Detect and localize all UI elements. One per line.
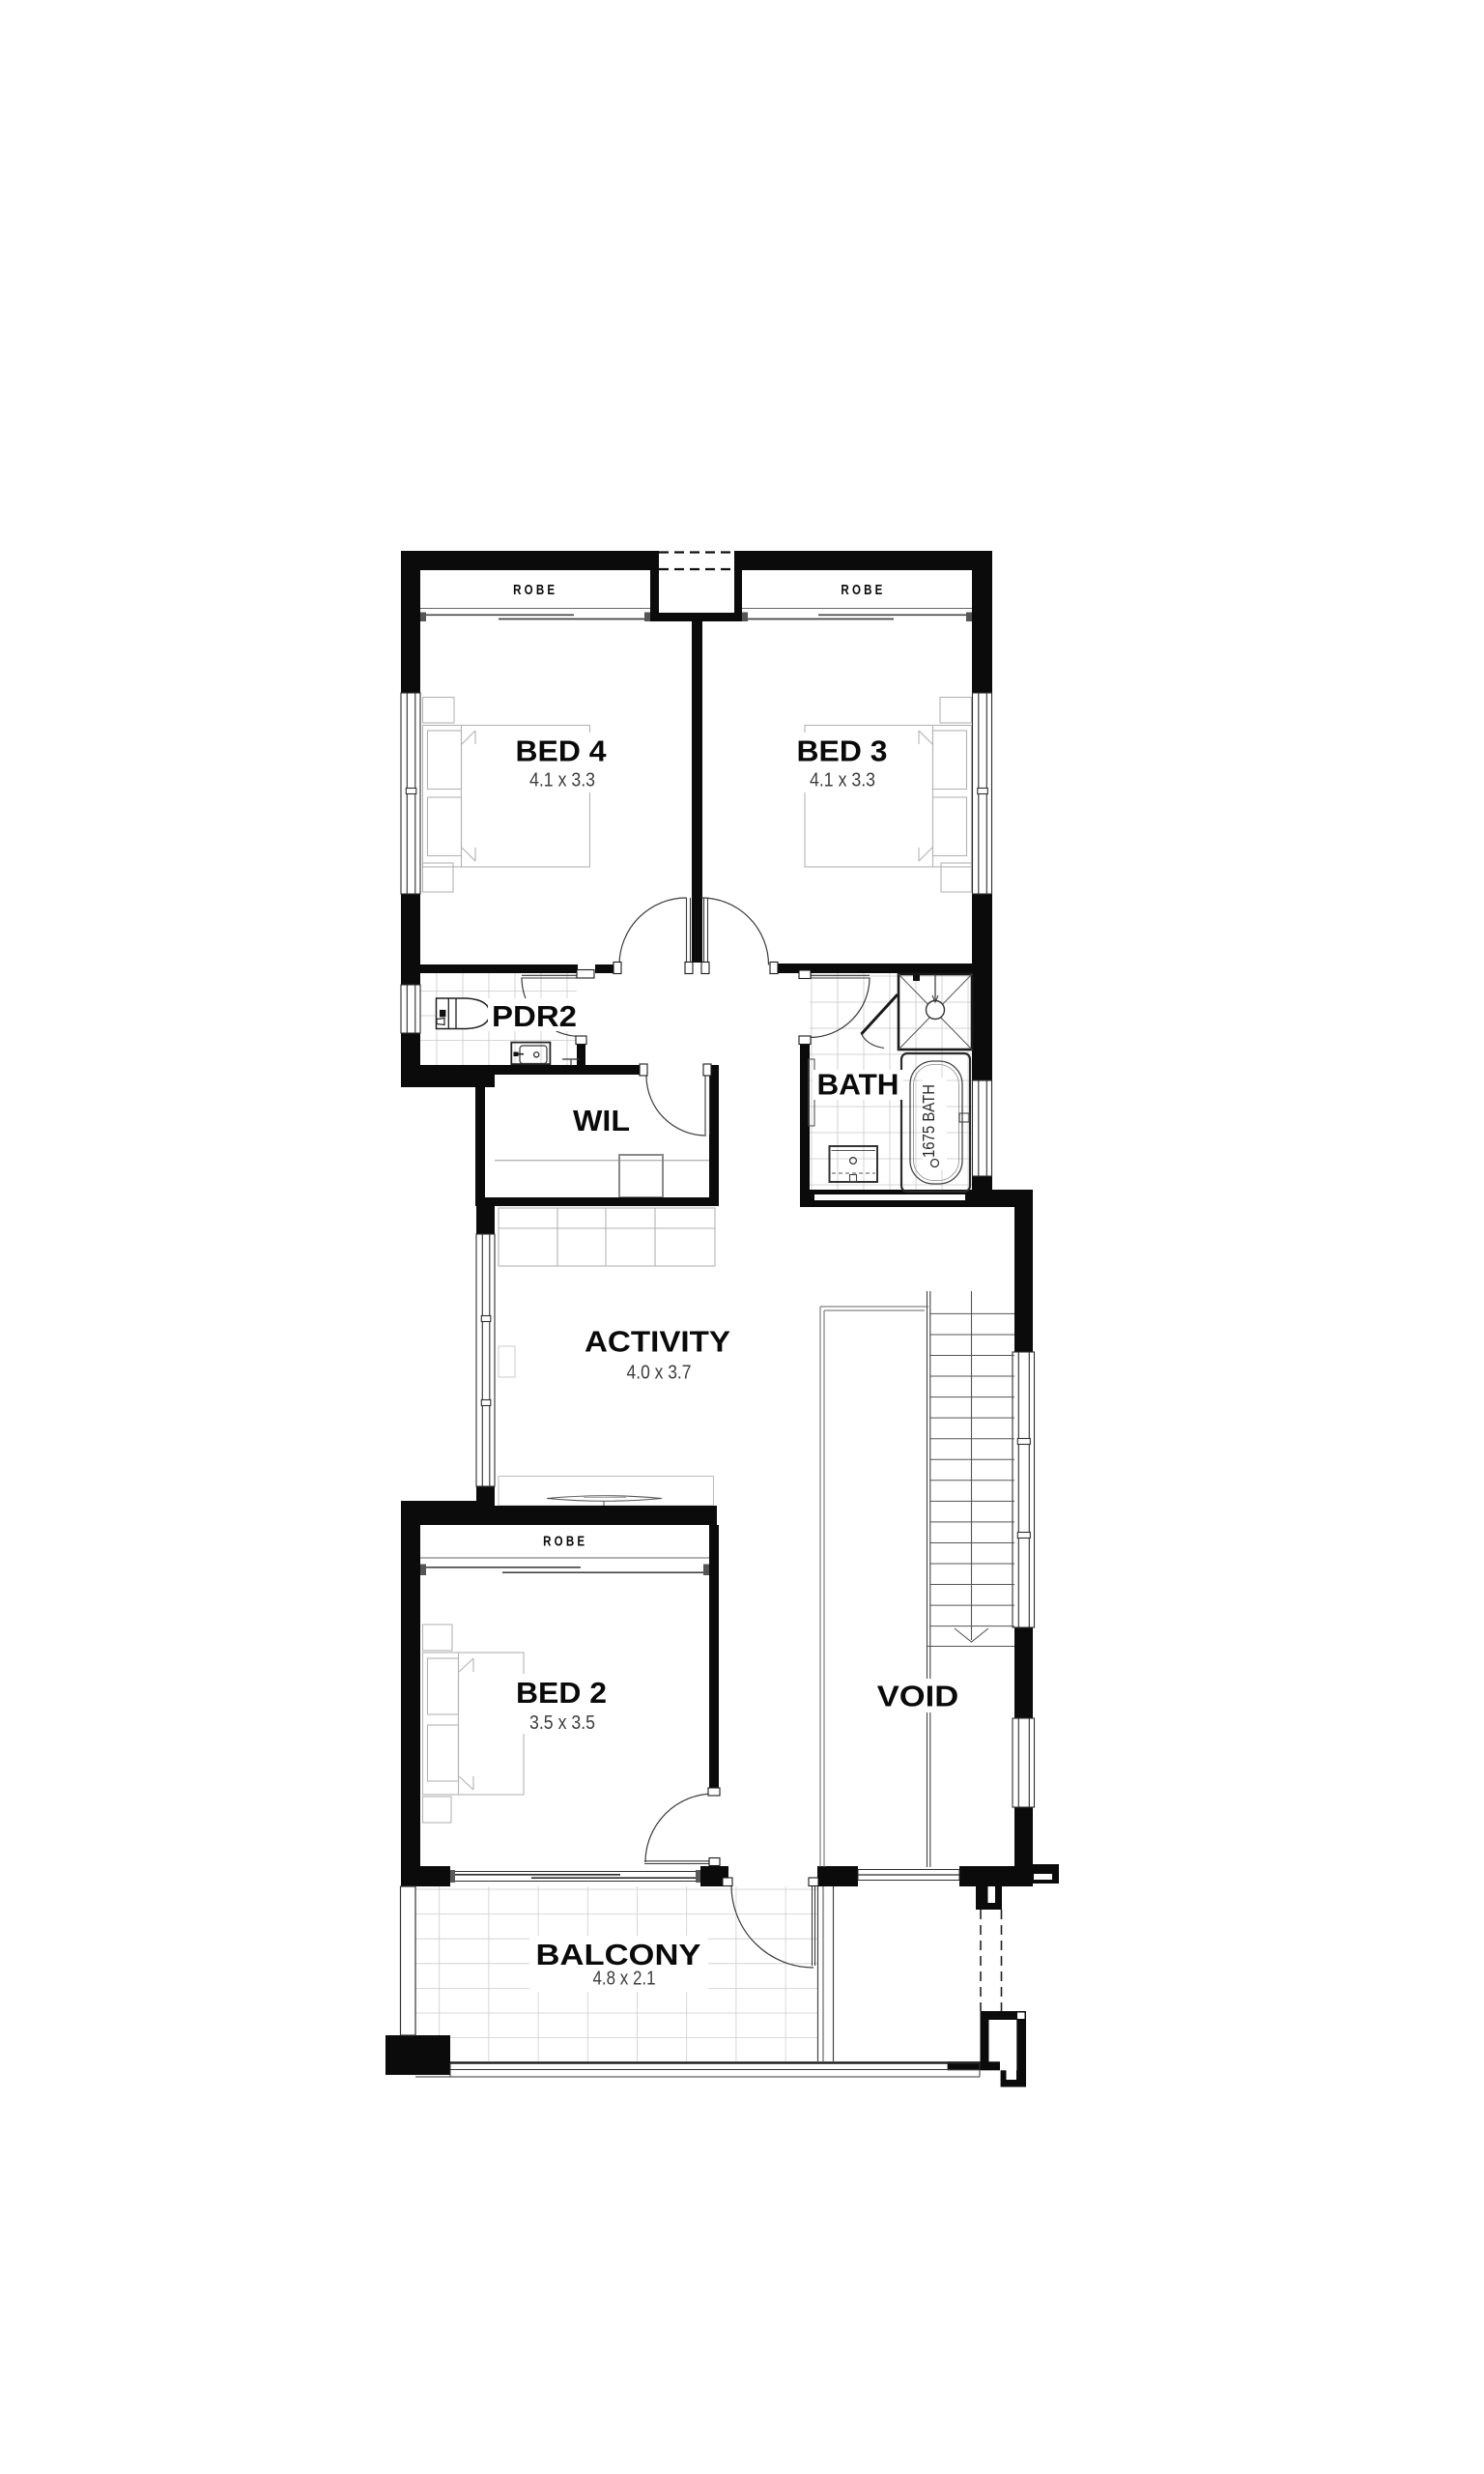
svg-text:4.8 x 2.1: 4.8 x 2.1 — [593, 1969, 656, 1990]
svg-text:R O B E: R O B E — [543, 1534, 585, 1550]
svg-text:BALCONY: BALCONY — [536, 1938, 701, 1971]
svg-text:R O B E: R O B E — [841, 582, 882, 598]
svg-text:1675 BATH: 1675 BATH — [919, 1084, 938, 1158]
svg-text:4.0 x 3.7: 4.0 x 3.7 — [627, 1363, 692, 1384]
svg-text:R O B E: R O B E — [513, 582, 555, 598]
svg-text:4.1 x 3.3: 4.1 x 3.3 — [810, 770, 875, 791]
svg-text:BATH: BATH — [817, 1068, 899, 1102]
svg-text:4.1 x 3.3: 4.1 x 3.3 — [529, 770, 595, 791]
svg-text:BED 2: BED 2 — [516, 1676, 607, 1710]
svg-text:PDR2: PDR2 — [492, 999, 577, 1033]
svg-text:BED 4: BED 4 — [516, 734, 608, 768]
svg-text:WIL: WIL — [573, 1104, 630, 1137]
svg-text:ACTIVITY: ACTIVITY — [585, 1325, 730, 1359]
svg-text:VOID: VOID — [877, 1680, 959, 1713]
svg-text:BED 3: BED 3 — [797, 734, 888, 768]
svg-text:3.5 x 3.5: 3.5 x 3.5 — [529, 1712, 595, 1734]
